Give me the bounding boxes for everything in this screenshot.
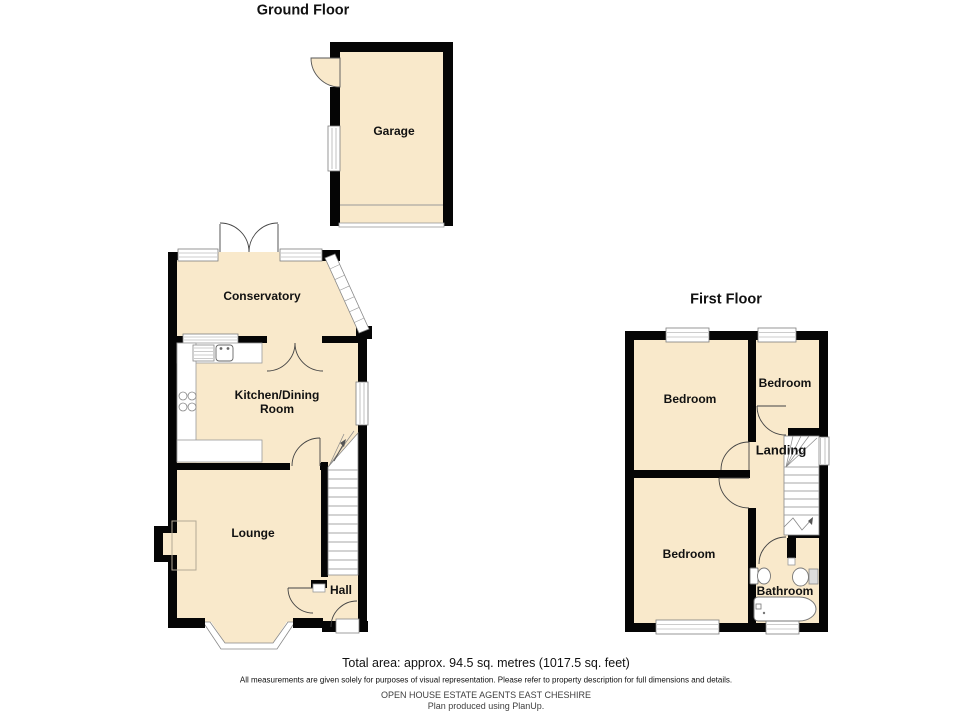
room-label-bedroom-left: Bedroom: [664, 392, 717, 406]
first-floor-title: First Floor: [690, 291, 762, 308]
ff-window-top-left: [666, 328, 709, 342]
garage-floor: [339, 51, 444, 226]
floorplan-drawing: [0, 0, 980, 712]
bathtub: [754, 597, 816, 621]
ground-floor-title: Ground Floor: [257, 2, 350, 19]
room-label-landing: Landing: [756, 442, 807, 457]
garage-window: [328, 126, 340, 171]
room-label-bedroom-bottom: Bedroom: [663, 547, 716, 561]
agent-name-text: OPEN HOUSE ESTATE AGENTS EAST CHESHIRE: [381, 690, 591, 700]
french-doors: [220, 223, 278, 252]
garage-wall-top: [330, 42, 453, 52]
garage-door-swing: [311, 58, 340, 87]
room-label-garage: Garage: [373, 124, 414, 138]
ff-window-bottom-right: [766, 620, 799, 634]
chimney-recess: [163, 533, 177, 555]
garage-wall-left-upper: [330, 42, 340, 59]
garage-door: [339, 223, 444, 227]
kitchen-side-window: [356, 382, 368, 425]
toilet: [750, 568, 771, 584]
conservatory-window-right: [280, 249, 322, 261]
room-label-lounge: Lounge: [231, 526, 274, 540]
room-label-bathroom: Bathroom: [757, 584, 814, 598]
disclaimer-text: All measurements are given solely for pu…: [240, 676, 732, 685]
room-label-kitchen: Kitchen/Dining Room: [228, 388, 326, 416]
produced-by-text: Plan produced using PlanUp.: [428, 701, 545, 711]
ff-window-bottom-left: [656, 620, 719, 634]
front-door: [336, 619, 359, 633]
garage-wall-right: [443, 42, 453, 226]
stair-newel: [313, 584, 325, 592]
floorplan-page: Ground Floor Garage Conservatory Kitchen…: [0, 0, 980, 712]
room-label-conservatory: Conservatory: [223, 289, 300, 303]
room-label-hall: Hall: [330, 583, 352, 597]
kitchen-pass-window: [183, 334, 238, 344]
ff-window-top-right: [758, 328, 796, 342]
kitchen-sink: [193, 345, 233, 361]
room-label-bedroom-right: Bedroom: [759, 376, 812, 390]
conservatory-window-left: [178, 249, 218, 261]
total-area-text: Total area: approx. 94.5 sq. metres (101…: [342, 656, 630, 670]
bathroom-door-jamb: [788, 558, 795, 565]
